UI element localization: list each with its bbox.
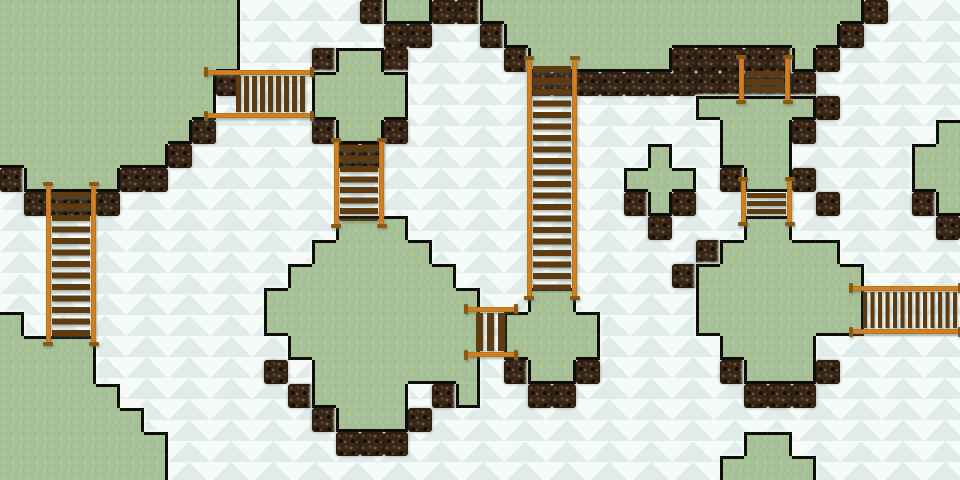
- grass-tile[interactable]: [288, 312, 312, 336]
- grass-tile[interactable]: [24, 72, 48, 96]
- grass-tile[interactable]: [720, 120, 744, 144]
- grass-tile[interactable]: [360, 240, 384, 264]
- grass-tile[interactable]: [192, 24, 216, 48]
- grass-tile[interactable]: [936, 144, 960, 168]
- grass-tile[interactable]: [600, 24, 624, 48]
- dock-tile[interactable]: [816, 48, 840, 72]
- grass-tile[interactable]: [744, 432, 768, 456]
- grass-tile[interactable]: [792, 0, 816, 24]
- dock-tile[interactable]: [792, 120, 816, 144]
- grass-tile[interactable]: [408, 312, 432, 336]
- dock-tile[interactable]: [432, 0, 456, 24]
- grass-tile[interactable]: [528, 24, 552, 48]
- grass-tile[interactable]: [720, 0, 744, 24]
- grass-tile[interactable]: [336, 288, 360, 312]
- grass-tile[interactable]: [744, 240, 768, 264]
- dock-tile[interactable]: [816, 96, 840, 120]
- grass-tile[interactable]: [120, 432, 144, 456]
- grass-tile[interactable]: [624, 48, 648, 72]
- dock-tile[interactable]: [672, 192, 696, 216]
- grass-tile[interactable]: [528, 0, 552, 24]
- grass-tile[interactable]: [120, 120, 144, 144]
- grass-tile[interactable]: [48, 360, 72, 384]
- dock-tile[interactable]: [648, 216, 672, 240]
- grass-tile[interactable]: [48, 96, 72, 120]
- grass-tile[interactable]: [936, 168, 960, 192]
- grass-tile[interactable]: [312, 312, 336, 336]
- grass-tile[interactable]: [0, 24, 24, 48]
- dock-tile[interactable]: [816, 360, 840, 384]
- grass-tile[interactable]: [360, 288, 384, 312]
- grass-tile[interactable]: [600, 0, 624, 24]
- grass-tile[interactable]: [768, 336, 792, 360]
- grass-tile[interactable]: [0, 48, 24, 72]
- grass-tile[interactable]: [312, 96, 336, 120]
- dock-tile[interactable]: [648, 72, 672, 96]
- grass-tile[interactable]: [816, 312, 840, 336]
- grass-tile[interactable]: [672, 0, 696, 24]
- dock-tile[interactable]: [360, 0, 384, 24]
- grass-tile[interactable]: [744, 360, 768, 384]
- grass-tile[interactable]: [720, 456, 744, 480]
- dock-tile[interactable]: [936, 216, 960, 240]
- grass-tile[interactable]: [336, 72, 360, 96]
- grass-tile[interactable]: [408, 264, 432, 288]
- grass-tile[interactable]: [72, 456, 96, 480]
- grass-tile[interactable]: [576, 48, 600, 72]
- grass-tile[interactable]: [576, 312, 600, 336]
- grass-tile[interactable]: [48, 72, 72, 96]
- grass-tile[interactable]: [672, 24, 696, 48]
- grass-tile[interactable]: [408, 360, 432, 384]
- grass-tile[interactable]: [0, 0, 24, 24]
- grass-tile[interactable]: [144, 144, 168, 168]
- grass-tile[interactable]: [744, 456, 768, 480]
- grass-tile[interactable]: [144, 0, 168, 24]
- grass-tile[interactable]: [144, 48, 168, 72]
- bridge-inlet-mini-horizontal[interactable]: [466, 307, 516, 357]
- dock-tile[interactable]: [192, 120, 216, 144]
- grass-tile[interactable]: [336, 240, 360, 264]
- dock-tile[interactable]: [408, 408, 432, 432]
- grass-tile[interactable]: [768, 456, 792, 480]
- grass-tile[interactable]: [744, 312, 768, 336]
- grass-tile[interactable]: [168, 48, 192, 72]
- grass-tile[interactable]: [768, 24, 792, 48]
- grass-tile[interactable]: [744, 336, 768, 360]
- grass-tile[interactable]: [456, 384, 480, 408]
- grass-tile[interactable]: [768, 288, 792, 312]
- grass-tile[interactable]: [744, 24, 768, 48]
- dock-tile[interactable]: [312, 408, 336, 432]
- dock-tile[interactable]: [696, 48, 720, 72]
- grass-tile[interactable]: [312, 264, 336, 288]
- grass-tile[interactable]: [0, 360, 24, 384]
- grass-tile[interactable]: [792, 456, 816, 480]
- grass-tile[interactable]: [600, 48, 624, 72]
- grass-tile[interactable]: [0, 408, 24, 432]
- grass-tile[interactable]: [384, 336, 408, 360]
- grass-tile[interactable]: [120, 144, 144, 168]
- grass-tile[interactable]: [816, 288, 840, 312]
- grass-tile[interactable]: [768, 0, 792, 24]
- grass-tile[interactable]: [120, 24, 144, 48]
- dock-tile[interactable]: [264, 360, 288, 384]
- grass-tile[interactable]: [768, 360, 792, 384]
- dock-tile[interactable]: [912, 192, 936, 216]
- grass-tile[interactable]: [384, 312, 408, 336]
- grass-tile[interactable]: [216, 48, 240, 72]
- grass-tile[interactable]: [720, 24, 744, 48]
- dock-tile[interactable]: [336, 432, 360, 456]
- grass-tile[interactable]: [168, 72, 192, 96]
- grass-tile[interactable]: [312, 360, 336, 384]
- dock-tile[interactable]: [0, 168, 24, 192]
- grass-tile[interactable]: [792, 264, 816, 288]
- grass-tile[interactable]: [792, 336, 816, 360]
- grass-tile[interactable]: [696, 0, 720, 24]
- grass-tile[interactable]: [792, 360, 816, 384]
- bridge-peninsula-mini-vertical[interactable]: [741, 179, 792, 224]
- dock-tile[interactable]: [792, 384, 816, 408]
- grass-tile[interactable]: [72, 384, 96, 408]
- grass-tile[interactable]: [840, 0, 864, 24]
- dock-tile[interactable]: [360, 432, 384, 456]
- dock-tile[interactable]: [672, 72, 696, 96]
- grass-tile[interactable]: [216, 0, 240, 24]
- dock-tile[interactable]: [816, 192, 840, 216]
- grass-tile[interactable]: [768, 120, 792, 144]
- grass-tile[interactable]: [360, 264, 384, 288]
- grass-tile[interactable]: [264, 312, 288, 336]
- dock-tile[interactable]: [672, 264, 696, 288]
- dock-tile[interactable]: [456, 0, 480, 24]
- grass-tile[interactable]: [792, 24, 816, 48]
- dock-tile[interactable]: [864, 0, 888, 24]
- grass-tile[interactable]: [360, 72, 384, 96]
- grass-tile[interactable]: [360, 312, 384, 336]
- grass-tile[interactable]: [336, 408, 360, 432]
- dock-tile[interactable]: [24, 192, 48, 216]
- grass-tile[interactable]: [24, 168, 48, 192]
- grass-tile[interactable]: [384, 384, 408, 408]
- dock-tile[interactable]: [744, 384, 768, 408]
- dock-tile[interactable]: [432, 384, 456, 408]
- grass-tile[interactable]: [120, 96, 144, 120]
- grass-tile[interactable]: [504, 24, 528, 48]
- grass-tile[interactable]: [168, 24, 192, 48]
- grass-tile[interactable]: [720, 288, 744, 312]
- dock-tile[interactable]: [312, 48, 336, 72]
- grass-tile[interactable]: [24, 96, 48, 120]
- grass-tile[interactable]: [96, 24, 120, 48]
- grass-tile[interactable]: [120, 48, 144, 72]
- grass-tile[interactable]: [312, 336, 336, 360]
- grass-tile[interactable]: [48, 24, 72, 48]
- grass-tile[interactable]: [360, 48, 384, 72]
- bridge-cross-island-vertical[interactable]: [334, 140, 384, 226]
- grass-tile[interactable]: [360, 408, 384, 432]
- grass-tile[interactable]: [336, 48, 360, 72]
- grass-tile[interactable]: [816, 264, 840, 288]
- dock-tile[interactable]: [552, 384, 576, 408]
- grass-tile[interactable]: [552, 24, 576, 48]
- grass-tile[interactable]: [72, 432, 96, 456]
- grass-tile[interactable]: [0, 432, 24, 456]
- dock-tile[interactable]: [768, 384, 792, 408]
- grass-tile[interactable]: [384, 0, 408, 24]
- grass-tile[interactable]: [792, 240, 816, 264]
- grass-tile[interactable]: [72, 0, 96, 24]
- grass-tile[interactable]: [432, 288, 456, 312]
- grass-tile[interactable]: [720, 144, 744, 168]
- grass-tile[interactable]: [792, 96, 816, 120]
- grass-tile[interactable]: [336, 360, 360, 384]
- grass-tile[interactable]: [24, 384, 48, 408]
- dock-tile[interactable]: [792, 72, 816, 96]
- dock-tile[interactable]: [528, 384, 552, 408]
- dock-tile[interactable]: [408, 24, 432, 48]
- dock-tile[interactable]: [624, 192, 648, 216]
- grass-tile[interactable]: [264, 288, 288, 312]
- grass-tile[interactable]: [312, 384, 336, 408]
- dock-tile[interactable]: [576, 360, 600, 384]
- grass-tile[interactable]: [384, 72, 408, 96]
- grass-tile[interactable]: [720, 240, 744, 264]
- grass-tile[interactable]: [144, 72, 168, 96]
- grass-tile[interactable]: [792, 288, 816, 312]
- grass-tile[interactable]: [360, 96, 384, 120]
- grass-tile[interactable]: [96, 96, 120, 120]
- grass-tile[interactable]: [120, 456, 144, 480]
- dock-tile[interactable]: [120, 168, 144, 192]
- grass-tile[interactable]: [624, 168, 648, 192]
- grass-tile[interactable]: [0, 96, 24, 120]
- dock-tile[interactable]: [504, 360, 528, 384]
- grass-tile[interactable]: [0, 456, 24, 480]
- grass-tile[interactable]: [48, 48, 72, 72]
- grass-tile[interactable]: [576, 24, 600, 48]
- grass-tile[interactable]: [720, 312, 744, 336]
- grass-tile[interactable]: [912, 168, 936, 192]
- grass-tile[interactable]: [408, 240, 432, 264]
- grass-tile[interactable]: [432, 360, 456, 384]
- grass-tile[interactable]: [336, 336, 360, 360]
- grass-tile[interactable]: [72, 144, 96, 168]
- grass-tile[interactable]: [24, 48, 48, 72]
- grass-tile[interactable]: [624, 0, 648, 24]
- grass-tile[interactable]: [768, 144, 792, 168]
- grass-tile[interactable]: [48, 432, 72, 456]
- grass-tile[interactable]: [720, 336, 744, 360]
- grass-tile[interactable]: [120, 408, 144, 432]
- grass-tile[interactable]: [336, 96, 360, 120]
- dock-tile[interactable]: [624, 72, 648, 96]
- grass-tile[interactable]: [144, 120, 168, 144]
- grass-tile[interactable]: [168, 96, 192, 120]
- grass-tile[interactable]: [144, 24, 168, 48]
- grass-tile[interactable]: [648, 24, 672, 48]
- grass-tile[interactable]: [816, 24, 840, 48]
- grass-tile[interactable]: [696, 264, 720, 288]
- grass-tile[interactable]: [936, 192, 960, 216]
- grass-tile[interactable]: [24, 336, 48, 360]
- grass-tile[interactable]: [48, 408, 72, 432]
- dock-tile[interactable]: [96, 192, 120, 216]
- grass-tile[interactable]: [384, 264, 408, 288]
- grass-tile[interactable]: [24, 144, 48, 168]
- grass-tile[interactable]: [792, 48, 816, 72]
- dock-tile[interactable]: [600, 72, 624, 96]
- grass-tile[interactable]: [720, 264, 744, 288]
- grass-tile[interactable]: [384, 408, 408, 432]
- grass-tile[interactable]: [72, 96, 96, 120]
- grass-tile[interactable]: [360, 336, 384, 360]
- bridge-center-tall-vertical[interactable]: [527, 58, 577, 298]
- grass-tile[interactable]: [72, 120, 96, 144]
- grass-tile[interactable]: [0, 120, 24, 144]
- grass-tile[interactable]: [648, 168, 672, 192]
- grass-tile[interactable]: [696, 96, 720, 120]
- grass-tile[interactable]: [768, 432, 792, 456]
- grass-tile[interactable]: [216, 24, 240, 48]
- grass-tile[interactable]: [528, 336, 552, 360]
- grass-tile[interactable]: [408, 336, 432, 360]
- grass-tile[interactable]: [624, 24, 648, 48]
- grass-tile[interactable]: [48, 144, 72, 168]
- dock-tile[interactable]: [672, 48, 696, 72]
- grass-tile[interactable]: [528, 360, 552, 384]
- grass-tile[interactable]: [144, 96, 168, 120]
- grass-tile[interactable]: [768, 312, 792, 336]
- grass-tile[interactable]: [696, 288, 720, 312]
- grass-tile[interactable]: [696, 312, 720, 336]
- grass-tile[interactable]: [48, 384, 72, 408]
- grass-tile[interactable]: [0, 312, 24, 336]
- grass-tile[interactable]: [24, 456, 48, 480]
- grass-tile[interactable]: [912, 144, 936, 168]
- grass-tile[interactable]: [96, 48, 120, 72]
- grass-tile[interactable]: [936, 120, 960, 144]
- grass-tile[interactable]: [72, 72, 96, 96]
- grass-tile[interactable]: [384, 288, 408, 312]
- dock-tile[interactable]: [792, 168, 816, 192]
- grass-tile[interactable]: [168, 0, 192, 24]
- grass-tile[interactable]: [744, 144, 768, 168]
- grass-tile[interactable]: [744, 120, 768, 144]
- grass-tile[interactable]: [168, 120, 192, 144]
- grass-tile[interactable]: [312, 72, 336, 96]
- grass-tile[interactable]: [96, 168, 120, 192]
- grass-tile[interactable]: [312, 288, 336, 312]
- grass-tile[interactable]: [288, 264, 312, 288]
- grass-tile[interactable]: [96, 384, 120, 408]
- dock-tile[interactable]: [384, 48, 408, 72]
- grass-tile[interactable]: [504, 0, 528, 24]
- dock-tile[interactable]: [384, 24, 408, 48]
- dock-tile[interactable]: [504, 48, 528, 72]
- grass-tile[interactable]: [576, 336, 600, 360]
- grass-tile[interactable]: [48, 456, 72, 480]
- grass-tile[interactable]: [0, 384, 24, 408]
- grass-tile[interactable]: [648, 144, 672, 168]
- grass-tile[interactable]: [336, 312, 360, 336]
- grass-tile[interactable]: [744, 288, 768, 312]
- grass-tile[interactable]: [120, 72, 144, 96]
- grass-tile[interactable]: [552, 336, 576, 360]
- grass-tile[interactable]: [408, 0, 432, 24]
- grass-tile[interactable]: [792, 312, 816, 336]
- grass-tile[interactable]: [384, 240, 408, 264]
- grass-tile[interactable]: [96, 72, 120, 96]
- grass-tile[interactable]: [672, 168, 696, 192]
- dock-tile[interactable]: [576, 72, 600, 96]
- grass-tile[interactable]: [72, 408, 96, 432]
- dock-tile[interactable]: [840, 24, 864, 48]
- dock-tile[interactable]: [384, 432, 408, 456]
- grass-tile[interactable]: [744, 0, 768, 24]
- grass-tile[interactable]: [384, 216, 408, 240]
- grass-tile[interactable]: [24, 432, 48, 456]
- bridge-channel-mini-vertical[interactable]: [739, 57, 790, 102]
- grass-tile[interactable]: [696, 24, 720, 48]
- grass-tile[interactable]: [96, 0, 120, 24]
- dock-tile[interactable]: [168, 144, 192, 168]
- grass-tile[interactable]: [72, 48, 96, 72]
- grass-tile[interactable]: [96, 456, 120, 480]
- grass-tile[interactable]: [552, 0, 576, 24]
- grass-tile[interactable]: [552, 360, 576, 384]
- dock-tile[interactable]: [480, 24, 504, 48]
- grass-tile[interactable]: [432, 312, 456, 336]
- grass-tile[interactable]: [144, 432, 168, 456]
- grass-tile[interactable]: [96, 432, 120, 456]
- grass-tile[interactable]: [408, 288, 432, 312]
- grass-tile[interactable]: [96, 144, 120, 168]
- grass-tile[interactable]: [48, 0, 72, 24]
- grass-tile[interactable]: [0, 336, 24, 360]
- grass-tile[interactable]: [816, 0, 840, 24]
- grass-tile[interactable]: [24, 360, 48, 384]
- dock-tile[interactable]: [696, 240, 720, 264]
- grass-tile[interactable]: [648, 48, 672, 72]
- grass-tile[interactable]: [288, 336, 312, 360]
- grass-tile[interactable]: [0, 144, 24, 168]
- grass-tile[interactable]: [312, 240, 336, 264]
- grass-tile[interactable]: [72, 360, 96, 384]
- dock-tile[interactable]: [288, 384, 312, 408]
- grass-tile[interactable]: [768, 264, 792, 288]
- bridge-east-horizontal[interactable]: [851, 286, 960, 334]
- bridge-west-horizontal[interactable]: [206, 70, 312, 118]
- grass-tile[interactable]: [576, 0, 600, 24]
- grass-tile[interactable]: [192, 0, 216, 24]
- grass-tile[interactable]: [24, 408, 48, 432]
- grass-tile[interactable]: [144, 456, 168, 480]
- grass-tile[interactable]: [336, 264, 360, 288]
- grass-tile[interactable]: [336, 384, 360, 408]
- grass-tile[interactable]: [528, 312, 552, 336]
- grass-tile[interactable]: [24, 0, 48, 24]
- grass-tile[interactable]: [744, 264, 768, 288]
- grass-tile[interactable]: [24, 120, 48, 144]
- dock-tile[interactable]: [696, 72, 720, 96]
- grass-tile[interactable]: [360, 384, 384, 408]
- grass-tile[interactable]: [648, 0, 672, 24]
- grass-tile[interactable]: [48, 120, 72, 144]
- grass-tile[interactable]: [360, 360, 384, 384]
- grass-tile[interactable]: [816, 240, 840, 264]
